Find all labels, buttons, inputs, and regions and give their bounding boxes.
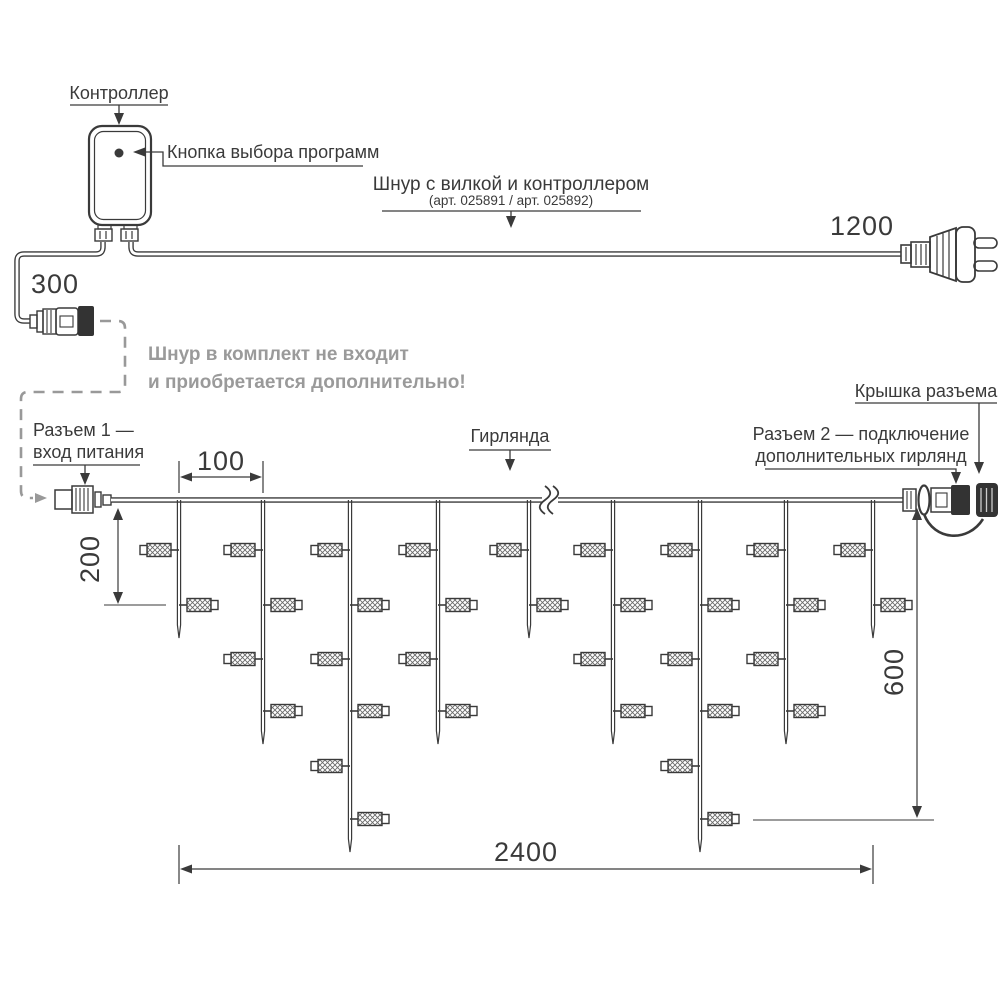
drop-wire [784,500,787,744]
connector2-pointer-line [765,469,956,477]
bulb-cap [834,546,841,555]
bulb-cap [311,655,318,664]
dim-300: 300 [31,269,79,299]
bulb-cap [399,655,406,664]
plug-body-ribs [937,231,949,279]
callout-labels: Разъем 1 — вход питания Гирлянда Разъем … [33,381,998,485]
connector-clamp [30,315,37,328]
led-bulb [446,705,470,718]
garland-label: Гирлянда [471,426,551,446]
led-bulb [708,813,732,826]
bulb-cap [490,546,497,555]
led-bulb [231,544,255,557]
connector1-nut [72,486,93,513]
bulb-cap [311,762,318,771]
controller-pointer-arrow-icon [114,113,124,125]
bulb-cap [211,601,218,610]
led-bulb [318,760,342,773]
controller-label: Контроллер [69,83,168,103]
connector2-thread-dark [951,485,970,515]
garland-drop [661,500,739,852]
led-bulb [497,544,521,557]
cord-right-outer [131,242,901,254]
dim-200: 200 [75,535,105,583]
led-bulb [794,599,818,612]
garland-drop [747,500,825,744]
led-bulb [271,599,295,612]
connector1-label-line2: вход питания [33,442,144,462]
dim-arrow-icon [113,508,123,520]
led-bulb [271,705,295,718]
led-bulb [621,705,645,718]
led-bulb [537,599,561,612]
connector2-body-detail [936,493,947,507]
bulb-cap [224,546,231,555]
led-bulb [358,599,382,612]
led-bulb [446,599,470,612]
bulb-cap [661,655,668,664]
led-bulb [406,653,430,666]
plug-grip-ribs [916,244,926,265]
cap-label: Крышка разъема [855,381,998,401]
wire-break-icon [540,486,559,514]
dim-600: 600 [879,648,909,696]
garland-drop [311,500,389,852]
connector2-label-line2: дополнительных гирлянд [755,446,967,466]
led-bulb [358,705,382,718]
drop-wire [611,500,614,744]
connector2-label-line1: Разъем 2 — подключение [753,424,970,444]
cord-title: Шнур с вилкой и контроллером [373,174,649,195]
note-line2: и приобретается дополнительно! [148,372,466,393]
strap-ring [919,486,930,515]
strap-cord [924,514,983,536]
bulb-cap [382,601,389,610]
bulb-cap [747,546,754,555]
bulb-cap [732,815,739,824]
bulb-cap [295,601,302,610]
led-bulb [147,544,171,557]
connector2-body [931,488,952,512]
controller-outlets [95,225,138,241]
led-bulb [708,599,732,612]
led-bulb [621,599,645,612]
connector-barrel [56,308,78,335]
led-bulb [358,813,382,826]
power-plug [901,227,997,282]
connector-thread-dark [78,306,94,336]
bulb-cap [561,601,568,610]
spare-cord-connector [30,306,94,336]
led-bulb [318,653,342,666]
bulb-cap [645,707,652,716]
dim-arrow-icon [250,473,262,482]
controller-group: Контроллер Кнопка выбора программ [69,83,379,241]
garland-pointer-arrow-icon [505,459,515,471]
drop-wire [871,500,874,638]
dashed-extension-route [21,321,125,498]
connector1-pointer-arrow-icon [80,473,90,485]
garland-group [55,483,998,852]
connector2-collar [903,489,916,511]
plug-prong [974,238,997,248]
diagram-page: Контроллер Кнопка выбора программ 300 12… [0,0,1000,1000]
garland-drop [834,500,912,638]
bulb-cap [747,655,754,664]
drop-wire [177,500,180,638]
led-bulb [754,544,778,557]
garland-drop [140,500,218,638]
dim-100: 100 [197,446,245,476]
led-bulb [318,544,342,557]
bulb-cap [470,707,477,716]
bulb-cap [661,762,668,771]
dimension-100: 100 [179,446,263,493]
bulb-cap [732,707,739,716]
program-button-pointer-arrow-icon [133,148,145,157]
bulb-cap [905,601,912,610]
led-bulb [708,705,732,718]
outlet-body [121,229,138,241]
dim-arrow-icon [113,592,123,604]
garland-diagram: Контроллер Кнопка выбора программ 300 12… [0,0,1000,1000]
garland-drop [490,500,568,638]
led-bulb [668,544,692,557]
outlet-ribs [100,231,132,239]
connector1-collar [95,492,101,507]
drop-wire [527,500,530,638]
led-bulb [581,653,605,666]
bulb-cap [295,707,302,716]
note-line1: Шнур в комплект не входит [148,344,409,365]
drop-wire [348,500,351,852]
drop-wire [261,500,264,744]
dim-arrow-icon [180,473,192,482]
plug-prong [974,261,997,271]
connector1-cap [55,490,72,509]
connector-nut [43,309,56,334]
dim-arrow-icon [912,806,922,818]
bulb-cap [645,601,652,610]
led-bulb [668,653,692,666]
bulb-cap [399,546,406,555]
led-bulb [881,599,905,612]
drop-wire [436,500,439,744]
connector2-collar-ribs [907,491,911,509]
led-bulb [581,544,605,557]
bulb-cap [574,655,581,664]
program-button-label: Кнопка выбора программ [167,142,379,162]
connector1 [55,486,111,513]
program-button-dot [115,149,124,158]
bulb-cap [382,815,389,824]
plug-face [956,227,975,282]
garland-drop [399,500,477,744]
dim-1200: 1200 [830,211,894,241]
power-cord-group: 300 1200 Шнур с вилкой и контроллером (а… [17,174,997,321]
connector1-collar [103,495,111,505]
controller-box-inner [95,132,146,220]
bulb-cap [470,601,477,610]
dimension-2400: 2400 [179,837,873,884]
bulb-cap [732,601,739,610]
cord-sku: (арт. 025891 / арт. 025892) [429,193,593,208]
dashed-route-arrow-icon [35,493,47,503]
bulb-cap [574,546,581,555]
connector-clamp [37,311,43,332]
controller-box [89,126,151,225]
dim-arrow-icon [180,865,192,874]
led-bulb [406,544,430,557]
dim-arrow-icon [860,865,872,874]
cap-pointer-arrow-icon [974,462,984,474]
outlet-body [95,229,112,241]
bulb-cap [818,707,825,716]
connector1-nut-ribs [76,488,88,511]
led-bulb [231,653,255,666]
connector1-label-line1: Разъем 1 — [33,420,134,440]
led-bulb [841,544,865,557]
drops-layer [140,500,912,852]
led-bulb [668,760,692,773]
bulb-cap [661,546,668,555]
garland-drop [574,500,652,744]
drop-wire [698,500,701,852]
bulb-cap [140,546,147,555]
connector-nut-ribs [47,310,51,333]
garland-drop [224,500,302,744]
led-bulb [187,599,211,612]
connector-barrel-detail [60,316,73,327]
led-bulb [794,705,818,718]
bulb-cap [818,601,825,610]
dim-2400: 2400 [494,837,558,867]
bulb-cap [311,546,318,555]
cord-pointer-arrow-icon [506,216,516,228]
connector2-pointer-arrow-icon [951,472,961,484]
led-bulb [754,653,778,666]
bulb-cap [224,655,231,664]
bulb-cap [382,707,389,716]
